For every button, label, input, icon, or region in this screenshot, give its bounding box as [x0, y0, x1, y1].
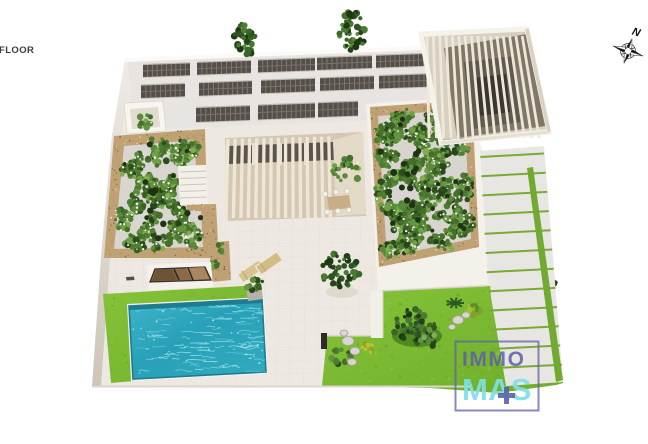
svg-text:IMMO: IMMO [462, 348, 526, 371]
svg-text:MAS: MAS [462, 372, 532, 407]
svg-text:FLOOR: FLOOR [0, 45, 34, 56]
